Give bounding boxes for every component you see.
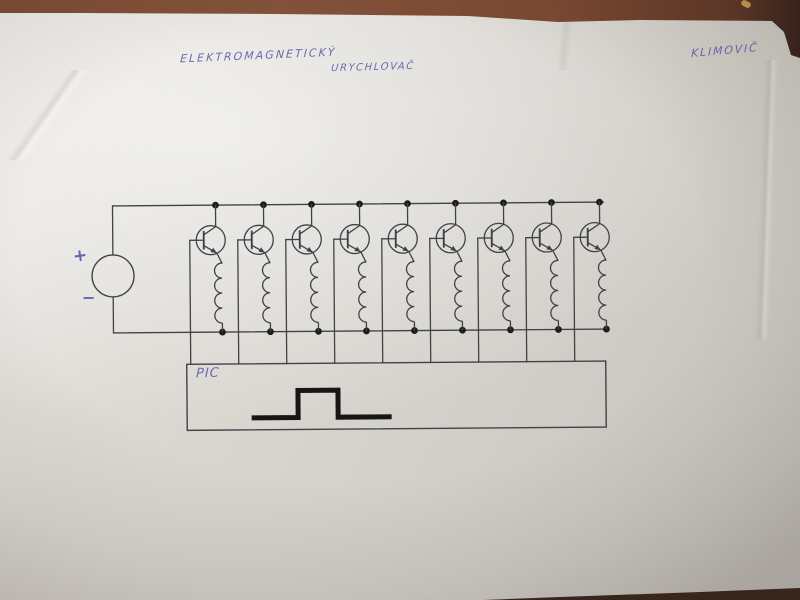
pulse-waveform (254, 390, 389, 418)
wire (492, 203, 503, 232)
wire (334, 239, 335, 363)
transistor-stage (333, 201, 370, 364)
transistor-icon (381, 204, 417, 262)
transistor-stage (189, 202, 226, 365)
coil-icon (262, 263, 270, 332)
coil-icon (358, 262, 366, 331)
wire (540, 202, 551, 231)
transistor-icon (477, 203, 513, 261)
wire (588, 202, 599, 231)
coil-icon (550, 260, 558, 329)
wire (252, 205, 263, 234)
transistor-icon (525, 202, 561, 260)
wire (526, 238, 527, 362)
coil-icon (214, 263, 222, 332)
transistor-icon (429, 203, 465, 261)
power-source-icon (91, 206, 134, 333)
wire (204, 205, 215, 234)
transistor-icon (189, 205, 225, 263)
wire (382, 239, 383, 363)
coil-icon (310, 262, 318, 331)
transistor-stage (381, 200, 418, 363)
pic-box (187, 361, 607, 430)
wire (396, 204, 407, 233)
wire (348, 204, 359, 233)
wire (478, 238, 479, 362)
pic-controller-label: PIC (196, 366, 220, 382)
wire (430, 238, 431, 362)
wire (190, 240, 191, 364)
coil-icon (502, 261, 510, 330)
transistor-icon (573, 202, 609, 260)
schematic-svg (0, 0, 800, 600)
transistor-icon (285, 204, 321, 262)
transistor-stage (477, 199, 514, 362)
coil-icon (598, 260, 606, 329)
power-plus-label: + (72, 245, 89, 267)
wire (574, 237, 575, 361)
wire (113, 329, 608, 333)
transistor-stage (429, 200, 466, 363)
wire (238, 240, 239, 364)
transistor-stage (237, 201, 274, 364)
wire (300, 204, 311, 233)
transistor-stage (525, 199, 562, 362)
transistor-icon (333, 204, 369, 262)
transistor-stage (573, 199, 610, 362)
transistor-icon (237, 205, 273, 263)
wire (286, 240, 287, 364)
coil-icon (454, 261, 462, 330)
coil-icon (406, 262, 414, 331)
transistor-stage (285, 201, 322, 364)
wire (444, 203, 455, 232)
photo-of-circuit-diagram: ELEKTROMAGNETICKÝ URYCHLOVAČ KLIMOVIČ + … (0, 0, 800, 600)
power-minus-label: − (82, 288, 95, 307)
